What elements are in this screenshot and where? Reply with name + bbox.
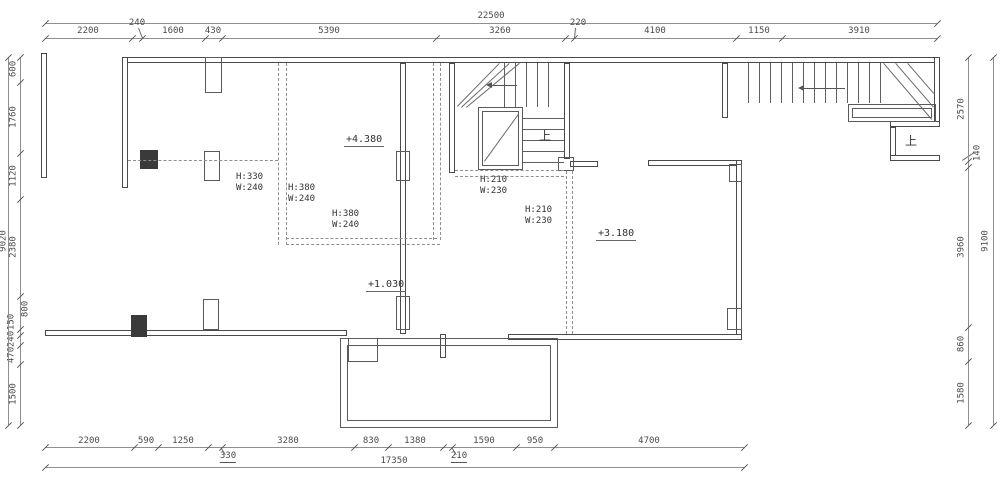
dimension-line	[45, 467, 744, 468]
stair-tread-line	[803, 63, 804, 103]
dimension-label: 4100	[644, 27, 666, 36]
outline-rect	[348, 338, 378, 362]
stair-up-label: 上	[905, 135, 917, 147]
wall	[570, 161, 598, 167]
beam-size-label: H:210 W:230	[525, 205, 552, 228]
stair-tread-line	[880, 63, 881, 103]
dimension-label: 1580	[958, 382, 967, 404]
dimension-label: 3260	[489, 27, 511, 36]
beam-dashed-line	[455, 176, 564, 177]
stair-tread-line	[814, 63, 815, 103]
outline-rect	[727, 308, 742, 330]
stair-direction-arrowhead	[798, 85, 804, 91]
stair-tread-line	[537, 63, 538, 107]
dimension-label: 1590	[473, 437, 495, 446]
elevation-label: +4.380	[344, 134, 384, 147]
stair-tread-line	[781, 63, 782, 103]
outline-rect	[729, 164, 742, 182]
dimension-label: 1380	[404, 437, 426, 446]
outline-rect	[203, 299, 219, 330]
dimension-label: 140	[974, 145, 983, 161]
wall	[400, 63, 406, 334]
dimension-label: 5390	[318, 27, 340, 36]
column	[131, 315, 147, 337]
dimension-label: 1760	[10, 106, 19, 128]
dimension-line	[45, 23, 937, 24]
dimension-label: 330	[220, 452, 236, 463]
dimension-label: 4700	[638, 437, 660, 446]
outline-rect	[396, 151, 410, 181]
beam-size-label: H:210 W:230	[480, 175, 507, 198]
dimension-label: 590	[138, 437, 154, 446]
wall	[564, 63, 570, 159]
diagonal-line	[907, 63, 934, 94]
wall	[41, 53, 47, 178]
dimension-label: 22500	[477, 12, 504, 21]
dimension-label: 240	[129, 19, 145, 28]
stair-tread-line	[523, 151, 564, 152]
dimension-label: 1120	[10, 165, 19, 187]
dimension-label: 3280	[277, 437, 299, 446]
dimension-label: 860	[958, 336, 967, 352]
dimension-label: 1500	[10, 383, 19, 405]
stair-tread-line	[748, 63, 749, 103]
dimension-label: 9100	[982, 230, 991, 252]
stair-tread-line	[847, 63, 848, 103]
beam-dashed-line	[440, 63, 441, 240]
beam-dashed-line	[286, 238, 437, 239]
dimension-label: 1150	[748, 27, 770, 36]
wall	[122, 57, 940, 63]
dimension-label: 800	[22, 301, 31, 317]
dimension-label: 1250	[172, 437, 194, 446]
outline-rect	[852, 108, 932, 118]
dimension-label: 2570	[958, 98, 967, 120]
wall	[45, 330, 347, 336]
dimension-line	[968, 57, 969, 425]
dimension-label: 600	[10, 61, 19, 77]
wall	[449, 63, 455, 173]
outline-rect	[204, 151, 220, 181]
wall	[648, 160, 742, 166]
dimension-label: 950	[527, 437, 543, 446]
dimension-label: 9020	[0, 230, 9, 252]
dimension-label: 830	[363, 437, 379, 446]
beam-dashed-line	[128, 160, 278, 161]
stair-direction-arrow	[800, 88, 845, 89]
stair-tread-line	[523, 162, 564, 163]
beam-dashed-line	[433, 63, 434, 240]
outline-rect	[396, 296, 410, 330]
beam-dashed-line	[286, 244, 440, 245]
dimension-label: 17350	[380, 457, 407, 466]
beam-dashed-line	[455, 170, 564, 171]
beam-dashed-line	[278, 63, 279, 245]
beam-size-label: H:380 W:240	[288, 183, 315, 206]
stair-tread-line	[523, 118, 564, 119]
beam-size-label: H:330 W:240	[236, 172, 263, 195]
dimension-label: 3960	[958, 236, 967, 258]
dimension-label: 210	[451, 452, 467, 463]
beam-dashed-line	[286, 63, 287, 245]
stair-tread-line	[869, 63, 870, 103]
floor-plan-canvas: 2250022002401600430539032602204100115039…	[0, 0, 1000, 494]
stair-tread-line	[825, 63, 826, 103]
stair-direction-arrowhead	[486, 82, 492, 88]
wall	[890, 155, 940, 161]
stair-tread-line	[858, 63, 859, 103]
stair-direction-arrow	[488, 85, 517, 86]
dimension-label: 220	[570, 19, 586, 28]
stair-tread-line	[836, 63, 837, 103]
beam-dashed-line	[572, 171, 573, 334]
elevation-label: +1.030	[366, 279, 406, 292]
outline-rect	[205, 57, 222, 93]
dimension-label: 430	[205, 27, 221, 36]
outline-rect	[558, 157, 574, 171]
dimension-line	[45, 38, 937, 39]
stair-tread-line	[526, 63, 527, 107]
beam-size-label: H:380 W:240	[332, 209, 359, 232]
dimension-label: 2380	[10, 236, 19, 258]
wall	[722, 63, 728, 118]
stair-up-label: 上	[539, 130, 551, 142]
dimension-line	[45, 447, 744, 448]
wall	[122, 57, 128, 188]
stair-tread-line	[759, 63, 760, 103]
beam-dashed-line	[566, 171, 567, 334]
dimension-label: 2200	[77, 27, 99, 36]
dimension-line	[20, 57, 21, 425]
elevation-label: +3.180	[596, 228, 636, 241]
dimension-label: 3910	[848, 27, 870, 36]
stair-tread-line	[792, 63, 793, 103]
stair-tread-line	[770, 63, 771, 103]
stair-tread-line	[548, 63, 549, 107]
plan-drawing-layer: 2250022002401600430539032602204100115039…	[0, 0, 1000, 494]
dimension-label: 1600	[162, 27, 184, 36]
dimension-label: 2200	[78, 437, 100, 446]
dimension-line	[993, 57, 994, 425]
